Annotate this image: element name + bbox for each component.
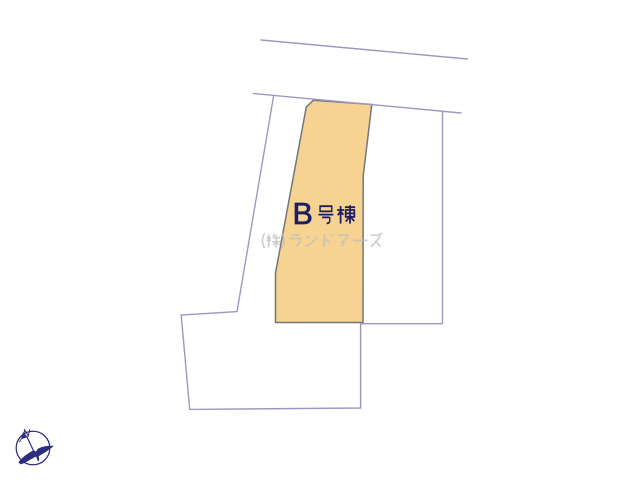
- svg-text:B: B: [293, 197, 313, 231]
